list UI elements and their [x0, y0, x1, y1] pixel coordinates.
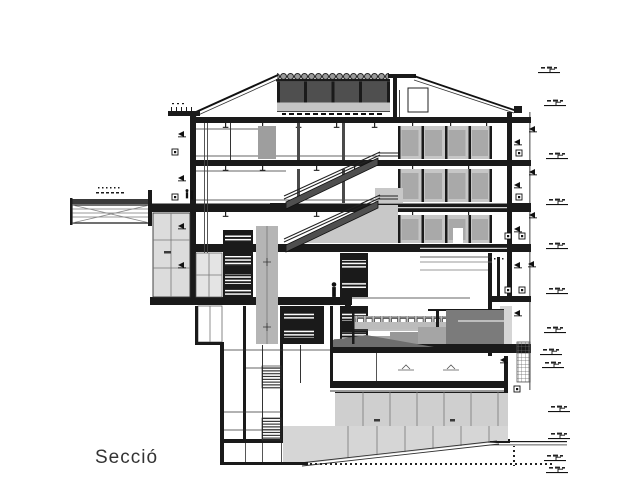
roof-ridge: [388, 74, 416, 78]
roof-sill-band: [277, 103, 390, 112]
ground-line: [490, 441, 567, 442]
roof-assembly: [168, 71, 522, 118]
right-glazing-rows: [398, 126, 492, 243]
elevation-markers: [538, 67, 570, 474]
boundary-dotted-line: [307, 463, 553, 465]
left-main-wall: [190, 113, 196, 302]
building-section-drawing: Secció: [0, 0, 640, 480]
retaining-hatch: [517, 342, 530, 382]
seat-panel-row: [355, 317, 447, 323]
right-roof-slope: [414, 76, 517, 111]
main-stairs: [270, 152, 403, 252]
left-wing: [153, 213, 190, 297]
penthouse-window: [408, 88, 428, 112]
drawing-title: Secció: [95, 447, 158, 468]
corrugated-roof: [277, 71, 389, 80]
basement-stair: [262, 418, 281, 440]
person-figure: [186, 189, 189, 198]
person-figure: [191, 190, 194, 199]
basement-stair: [262, 366, 281, 388]
person-figure: [332, 282, 337, 297]
left-roof-slope: [196, 75, 278, 112]
vent-dashes: [282, 113, 382, 116]
earth-fill-lower: [283, 426, 508, 464]
seating-bank: [446, 310, 504, 344]
section-drawing-canvas: Secció: [0, 0, 640, 480]
penthouse-wall: [393, 78, 397, 118]
earth-fill-upper: [335, 392, 508, 426]
